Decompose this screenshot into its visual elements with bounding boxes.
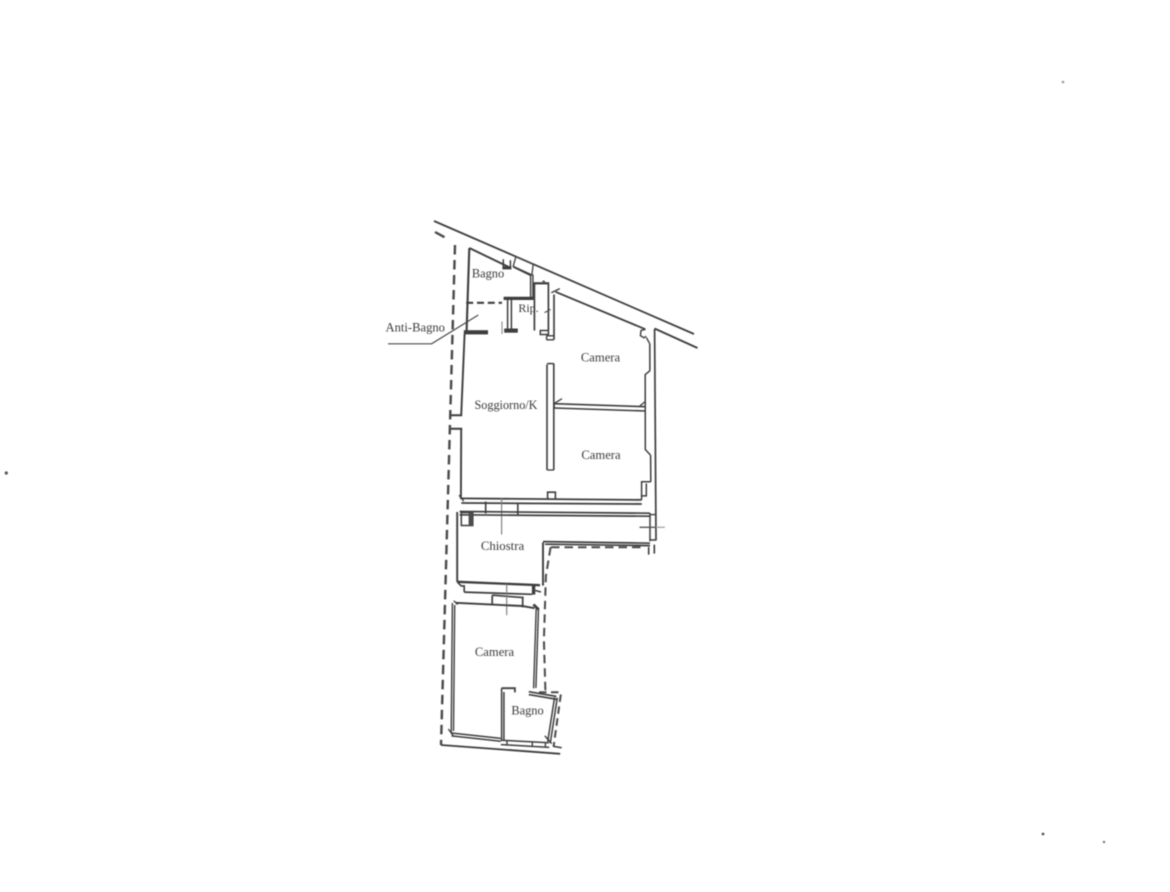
- svg-text:Bagno: Bagno: [472, 267, 504, 281]
- svg-text:Bagno: Bagno: [511, 703, 543, 717]
- svg-text:Soggiorno/K: Soggiorno/K: [475, 398, 538, 412]
- svg-text:Camera: Camera: [581, 448, 621, 462]
- svg-text:Anti-Bagno: Anti-Bagno: [386, 320, 445, 334]
- svg-text:Camera: Camera: [475, 645, 515, 659]
- svg-text:Rip.: Rip.: [518, 301, 538, 315]
- svg-text:Camera: Camera: [581, 351, 621, 365]
- svg-text:Chiostra: Chiostra: [481, 539, 525, 553]
